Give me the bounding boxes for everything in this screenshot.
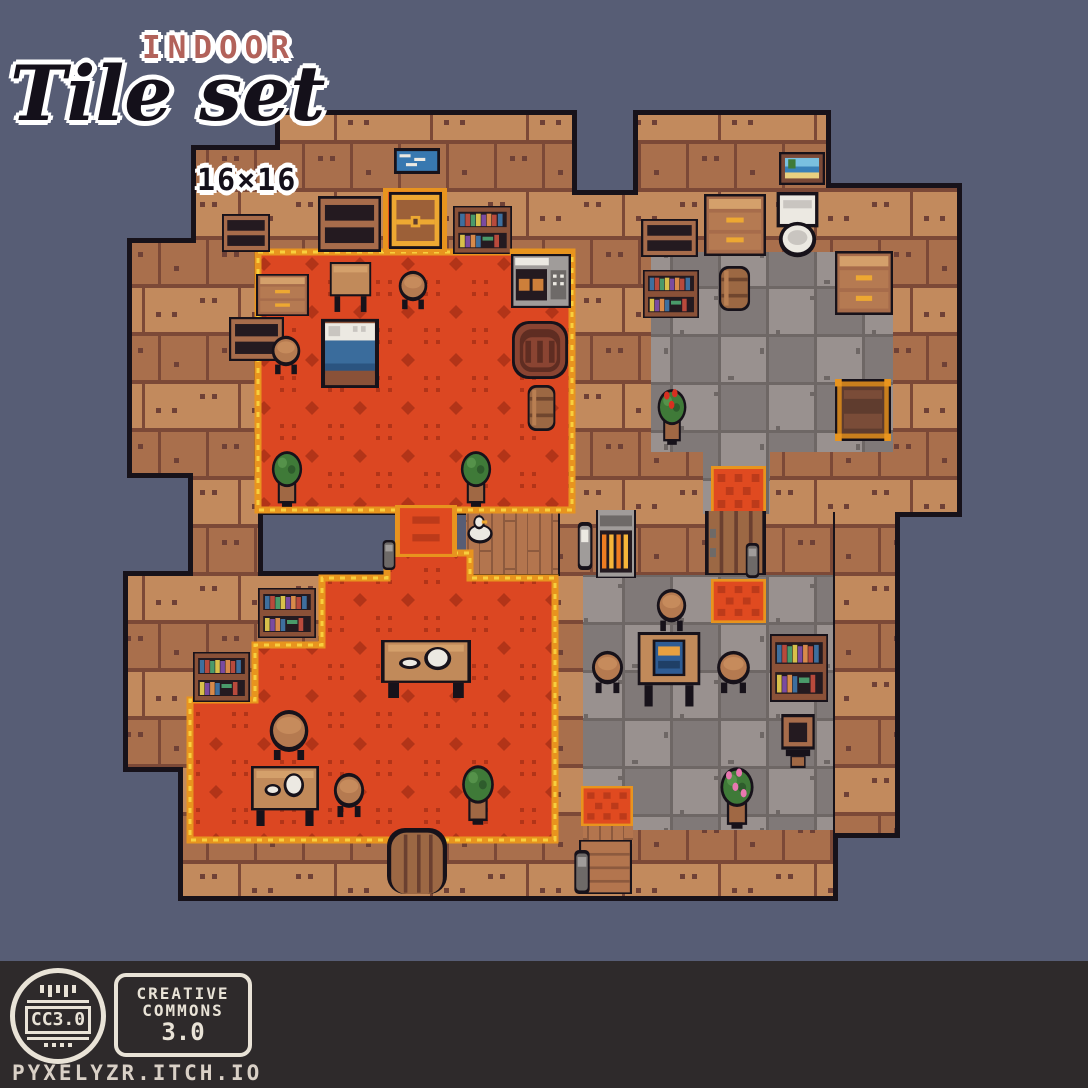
creative-commons-badge: CREATIVE COMMONS 3.0 [114,973,252,1057]
sprite-door_arch [387,828,447,894]
sprite-dresser [256,274,309,316]
sprite-rug [711,466,766,516]
sprite-runner [395,505,457,557]
sprite-bookshelf [258,588,316,638]
license-footer: CC3.0 CREATIVE COMMONS 3.0 PYXELYZR.ITCH… [0,961,1088,1088]
badge-ticks-decoration [40,985,76,997]
sprite-toilet [777,192,819,257]
sprite-fireplace [596,510,636,578]
author-site-link[interactable]: PYXELYZR.ITCH.IO [12,1061,262,1085]
sprite-painting [779,152,825,185]
badge-line-decoration [27,1000,89,1003]
sprite-jug [578,522,592,570]
sprite-bookshelf [643,270,699,318]
sprite-statue [746,543,759,578]
sprite-chest_gold [389,192,442,249]
cc-version-number: 3.0 [161,1020,204,1045]
sprite-dresser [704,194,766,256]
cc-word-creative: CREATIVE [136,985,229,1003]
sprite-rug [711,579,766,623]
sprite-bookshelf [770,634,828,702]
sprite-statue [574,850,589,894]
tileset-map-illustration [0,0,1088,1088]
sprite-statue [383,540,396,570]
sprite-barrel [719,266,750,311]
sprite-chest_framed [835,379,891,441]
sprite-window [394,148,440,174]
sprite-cabinet [222,214,270,252]
badge-dots-decoration [44,1043,72,1047]
sprite-armchair [512,321,568,379]
tileset-poster: INDOOR Tile set 16×16 CC3.0 CREATIVE COM… [0,0,1088,1088]
sprite-rug [581,786,633,826]
sprite-cabinet [318,196,381,252]
sprite-dresser [835,251,893,315]
sprite-bed [321,319,379,388]
cc-version-label: CC3.0 [25,1006,91,1034]
sprite-oven [510,249,572,308]
sprite-bookshelf [453,206,512,254]
cc-circle-badge: CC3.0 [10,968,106,1064]
badge-line-decoration [27,1037,89,1040]
title-tileset: Tile set [10,56,325,132]
title-tile-size: 16×16 [197,163,297,198]
sprite-barrel [528,385,556,431]
sprite-cabinet [641,219,698,257]
sprite-bookshelf [193,652,250,702]
